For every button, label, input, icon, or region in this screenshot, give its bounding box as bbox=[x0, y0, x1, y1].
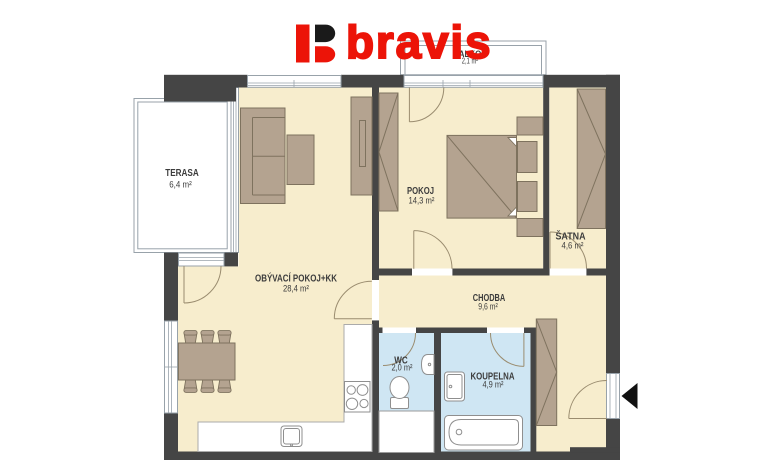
svg-text:9,6 m²: 9,6 m² bbox=[478, 302, 498, 313]
svg-text:28,4 m²: 28,4 m² bbox=[283, 284, 309, 295]
svg-text:4,9 m²: 4,9 m² bbox=[483, 380, 504, 391]
svg-text:2,0 m²: 2,0 m² bbox=[392, 363, 413, 374]
svg-text:14,3 m²: 14,3 m² bbox=[409, 196, 435, 207]
svg-text:bravis: bravis bbox=[346, 16, 492, 68]
svg-text:6,4 m²: 6,4 m² bbox=[169, 180, 192, 191]
svg-text:TERASA: TERASA bbox=[165, 168, 199, 179]
svg-text:4,6 m²: 4,6 m² bbox=[562, 241, 584, 252]
